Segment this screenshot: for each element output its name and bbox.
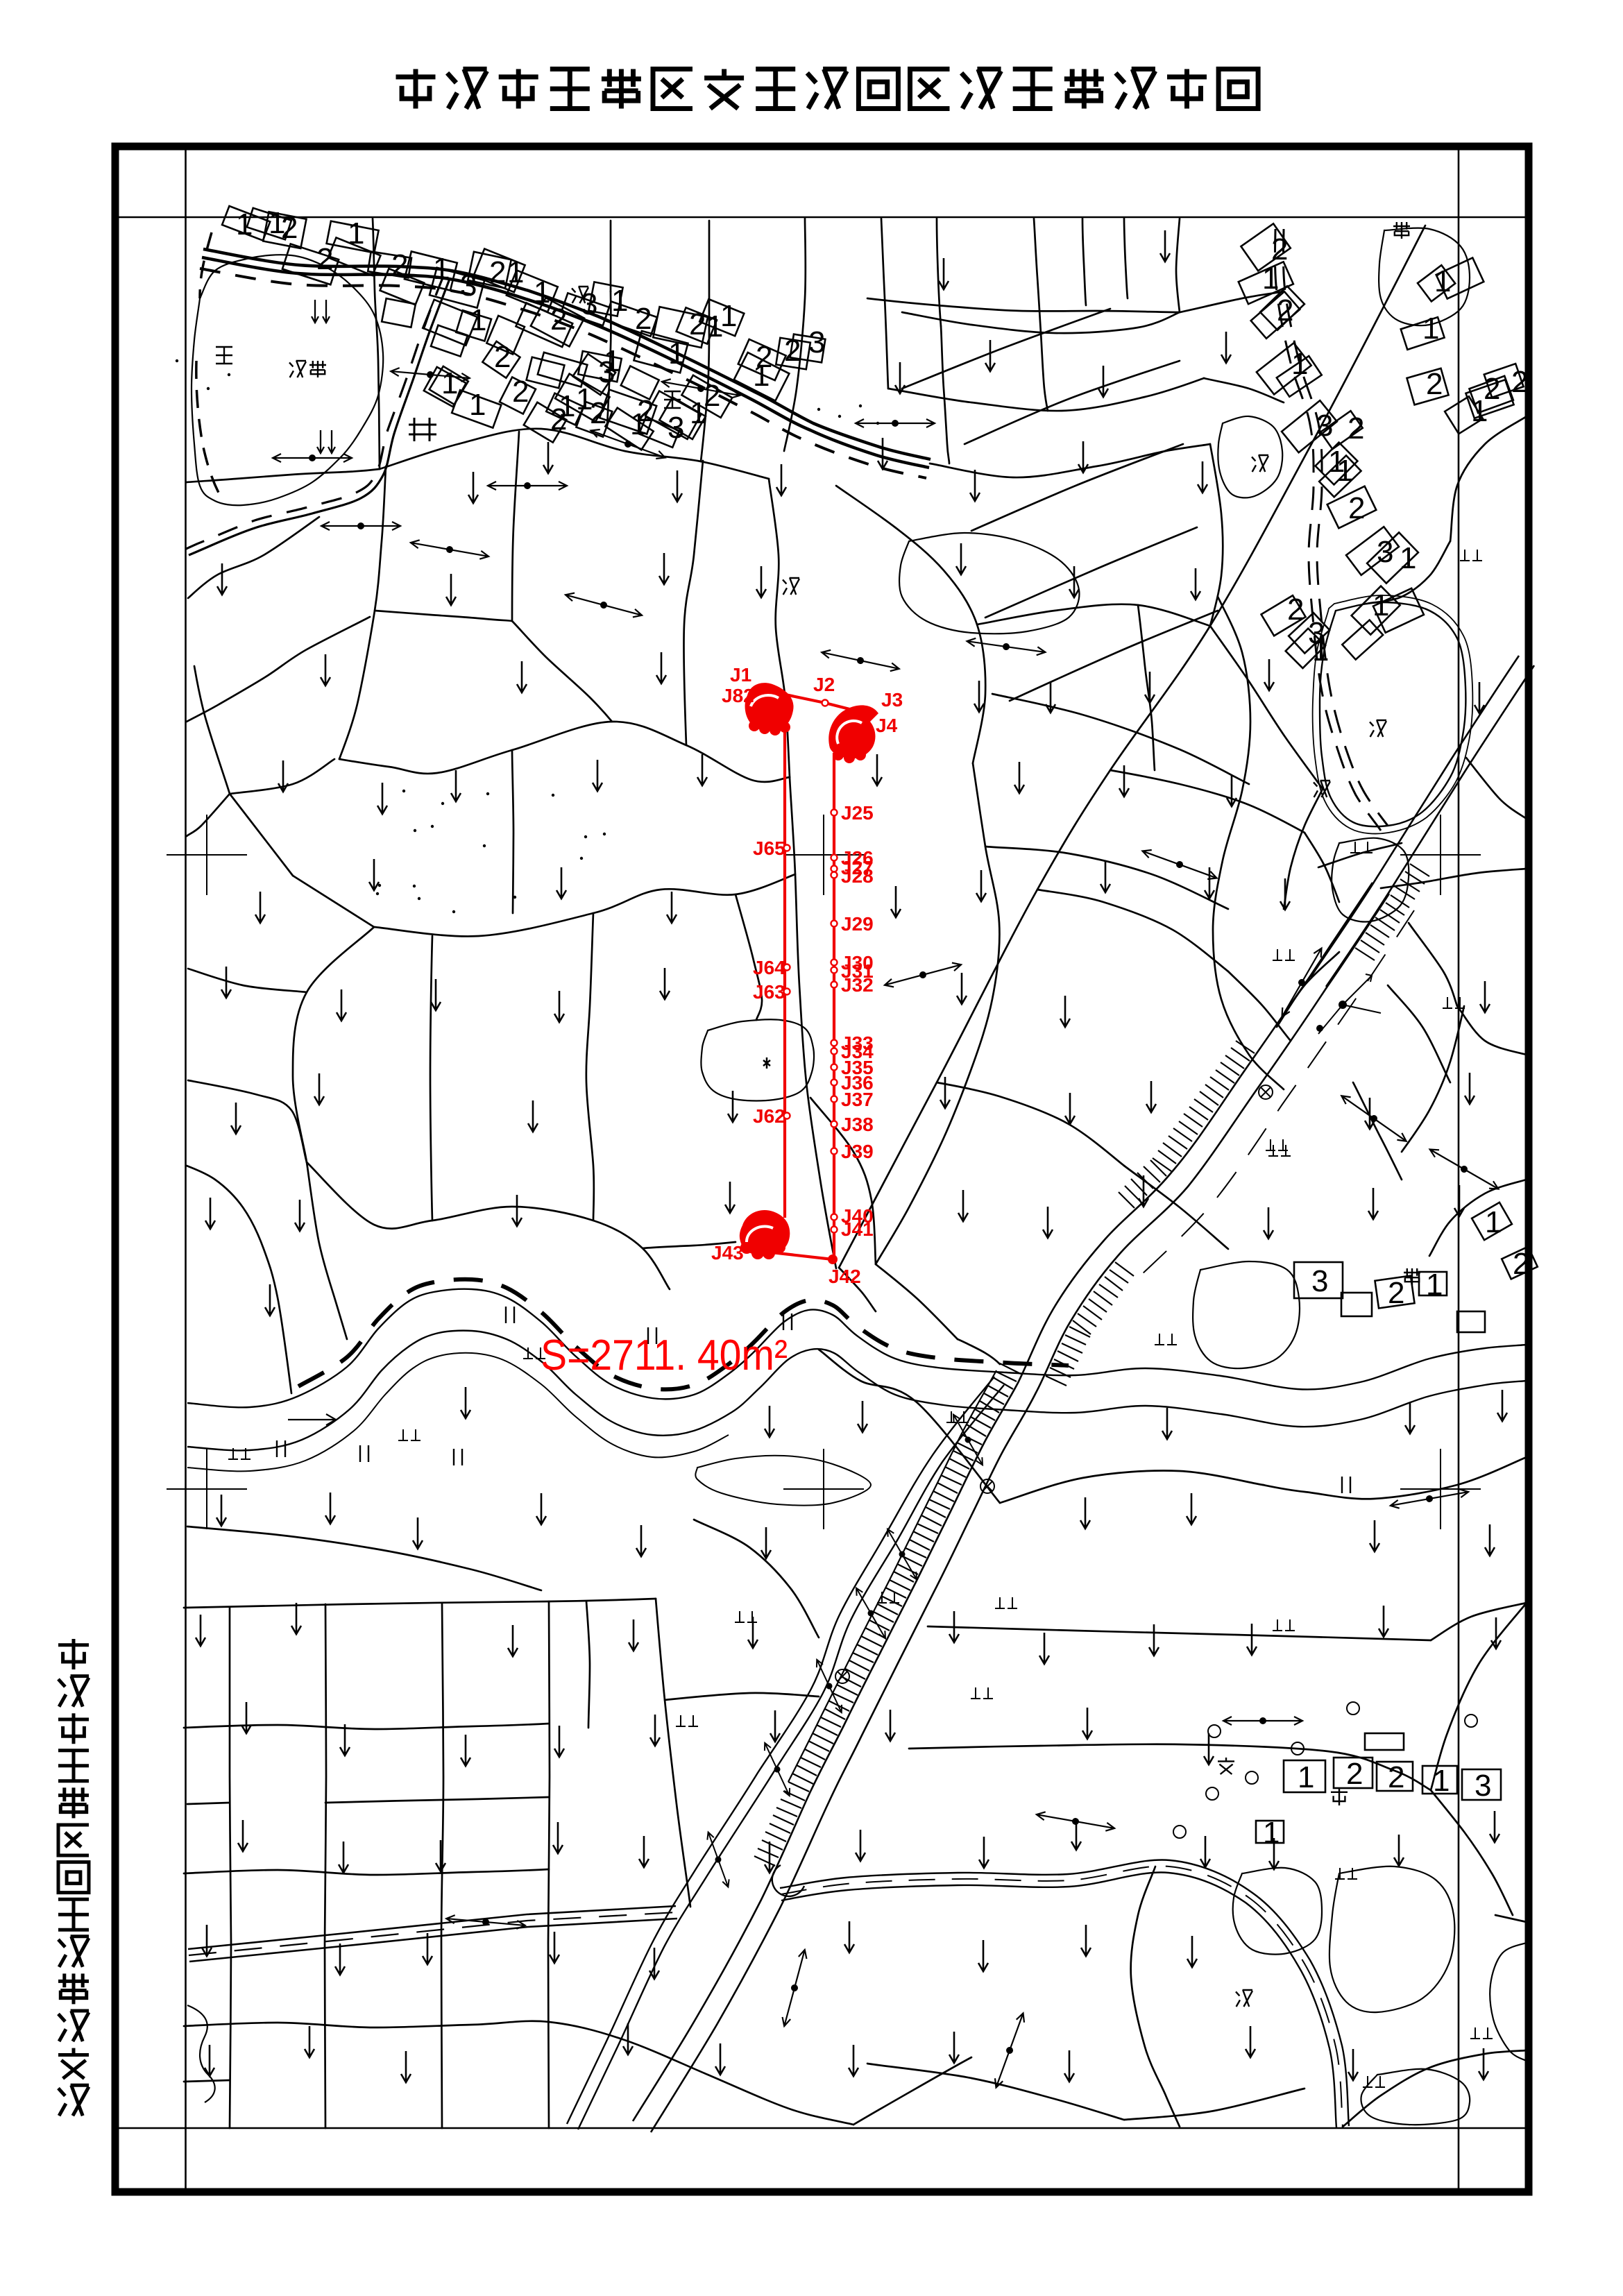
svg-text:2: 2 <box>281 211 298 245</box>
svg-text:J82: J82 <box>722 685 754 706</box>
svg-text:J62: J62 <box>753 1105 785 1127</box>
svg-text:3: 3 <box>1316 409 1333 443</box>
svg-text:S=2711. 40m²: S=2711. 40m² <box>541 1332 788 1379</box>
svg-text:2: 2 <box>689 307 706 341</box>
svg-text:2: 2 <box>316 242 333 276</box>
svg-text:2: 2 <box>1287 593 1304 627</box>
svg-text:2: 2 <box>1346 1757 1363 1791</box>
svg-text:1: 1 <box>534 275 550 309</box>
svg-text:1: 1 <box>1471 394 1488 428</box>
svg-text:1: 1 <box>1291 347 1308 381</box>
svg-text:J63: J63 <box>753 981 785 1003</box>
svg-text:2: 2 <box>1348 411 1364 445</box>
svg-text:1: 1 <box>441 366 458 400</box>
svg-text:1: 1 <box>1433 1764 1450 1798</box>
svg-text:1: 1 <box>507 255 524 289</box>
svg-text:3: 3 <box>808 325 825 359</box>
svg-text:2: 2 <box>1388 1760 1404 1794</box>
svg-text:J32: J32 <box>841 974 874 996</box>
svg-text:3: 3 <box>1311 1264 1328 1298</box>
svg-text:1: 1 <box>1485 1205 1502 1239</box>
svg-text:J3: J3 <box>881 689 903 711</box>
svg-text:2: 2 <box>512 375 529 409</box>
svg-text:J4: J4 <box>876 715 898 736</box>
svg-text:1: 1 <box>1336 454 1353 488</box>
svg-text:2: 2 <box>590 396 606 430</box>
svg-text:2: 2 <box>1511 365 1528 399</box>
svg-text:1: 1 <box>236 207 253 241</box>
svg-text:J38: J38 <box>841 1114 874 1135</box>
svg-text:3: 3 <box>1308 616 1325 650</box>
svg-text:3: 3 <box>1377 535 1393 569</box>
svg-text:2: 2 <box>550 303 567 337</box>
svg-text:1: 1 <box>1262 262 1279 296</box>
svg-text:J2: J2 <box>813 674 835 695</box>
svg-text:2: 2 <box>1388 1276 1404 1310</box>
svg-text:J1: J1 <box>730 664 751 686</box>
svg-text:J43: J43 <box>711 1242 744 1264</box>
svg-text:J41: J41 <box>841 1218 874 1240</box>
svg-text:1: 1 <box>1422 312 1439 346</box>
svg-text:2: 2 <box>1426 367 1443 401</box>
svg-text:2: 2 <box>704 379 720 413</box>
svg-text:1: 1 <box>630 407 647 441</box>
svg-text:1: 1 <box>433 252 450 286</box>
svg-text:3: 3 <box>598 355 615 389</box>
svg-text:2: 2 <box>489 255 506 289</box>
svg-text:1: 1 <box>720 299 737 333</box>
svg-text:2: 2 <box>635 302 652 336</box>
svg-text:1: 1 <box>1400 541 1416 575</box>
svg-text:2: 2 <box>391 248 408 282</box>
svg-text:J37: J37 <box>841 1089 874 1110</box>
svg-text:1: 1 <box>469 388 486 422</box>
svg-text:2: 2 <box>1513 1247 1529 1281</box>
svg-text:1: 1 <box>1426 1268 1443 1302</box>
svg-text:J39: J39 <box>841 1141 874 1162</box>
svg-text:1: 1 <box>611 284 628 318</box>
svg-text:3: 3 <box>581 287 597 321</box>
svg-text:J29: J29 <box>841 913 874 935</box>
svg-text:1: 1 <box>1263 1816 1280 1850</box>
svg-text:1: 1 <box>470 303 486 337</box>
svg-text:3: 3 <box>460 269 477 303</box>
svg-text:1: 1 <box>559 389 575 423</box>
svg-text:1: 1 <box>1434 264 1451 298</box>
svg-text:2: 2 <box>784 334 801 368</box>
svg-text:1: 1 <box>753 359 770 393</box>
svg-text:J28: J28 <box>841 865 874 887</box>
svg-text:J64: J64 <box>753 957 785 978</box>
svg-text:1: 1 <box>668 337 685 371</box>
svg-text:J65: J65 <box>753 837 785 859</box>
svg-text:1: 1 <box>348 216 364 250</box>
svg-text:1: 1 <box>1373 588 1389 622</box>
svg-text:2: 2 <box>1348 491 1365 525</box>
svg-text:3: 3 <box>668 411 684 445</box>
svg-text:1: 1 <box>1298 1760 1314 1794</box>
svg-text:2: 2 <box>494 340 511 374</box>
svg-text:3: 3 <box>1475 1769 1491 1803</box>
svg-text:J42: J42 <box>829 1266 861 1287</box>
svg-text:2: 2 <box>1277 294 1293 328</box>
svg-text:J25: J25 <box>841 802 874 824</box>
